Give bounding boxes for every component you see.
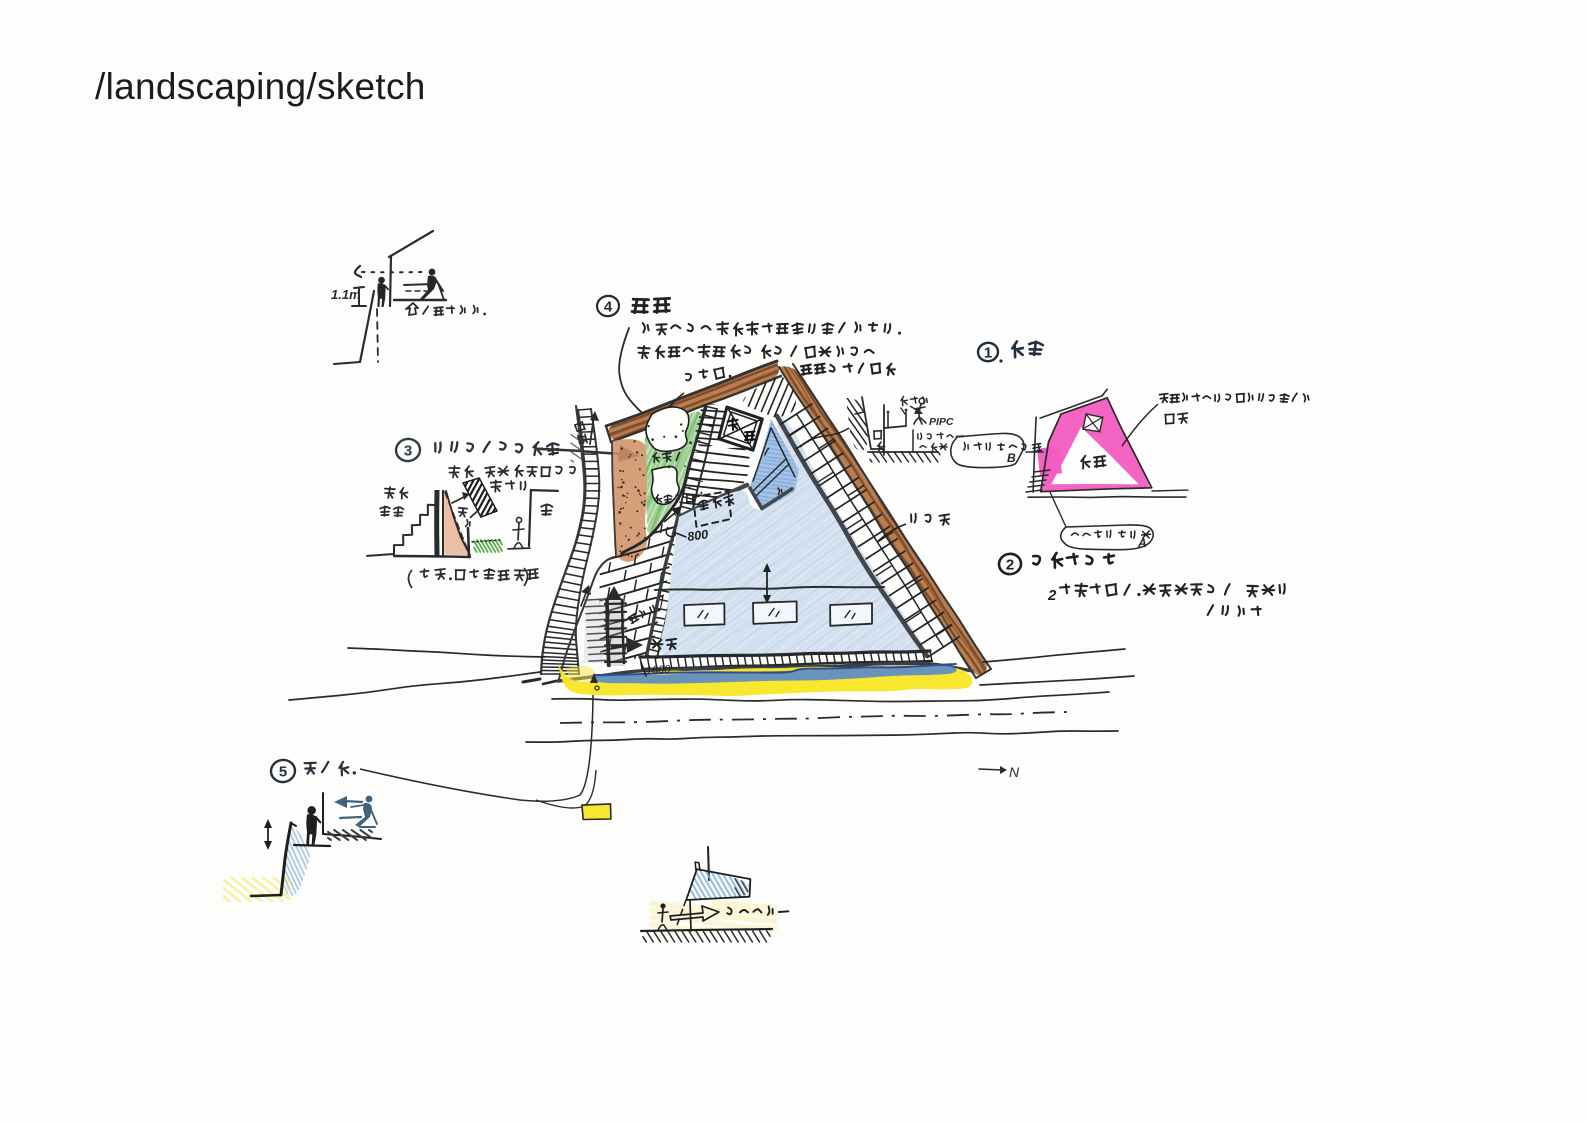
svg-text:B: B: [1007, 451, 1016, 465]
svg-text:A: A: [1137, 536, 1147, 550]
svg-text:N: N: [1009, 764, 1020, 780]
svg-text:1600: 1600: [646, 664, 672, 677]
svg-text:PIPC: PIPC: [929, 416, 954, 428]
svg-text:800: 800: [686, 527, 709, 544]
svg-text:5: 5: [279, 763, 287, 780]
svg-text:4: 4: [604, 298, 613, 315]
svg-text:1.1m: 1.1m: [331, 287, 361, 302]
svg-text:1: 1: [984, 344, 992, 361]
svg-text:2: 2: [1006, 556, 1014, 573]
svg-text:3: 3: [404, 442, 412, 459]
svg-text:2: 2: [1047, 587, 1057, 604]
svg-text:/landscaping/sketch: /landscaping/sketch: [95, 66, 426, 107]
